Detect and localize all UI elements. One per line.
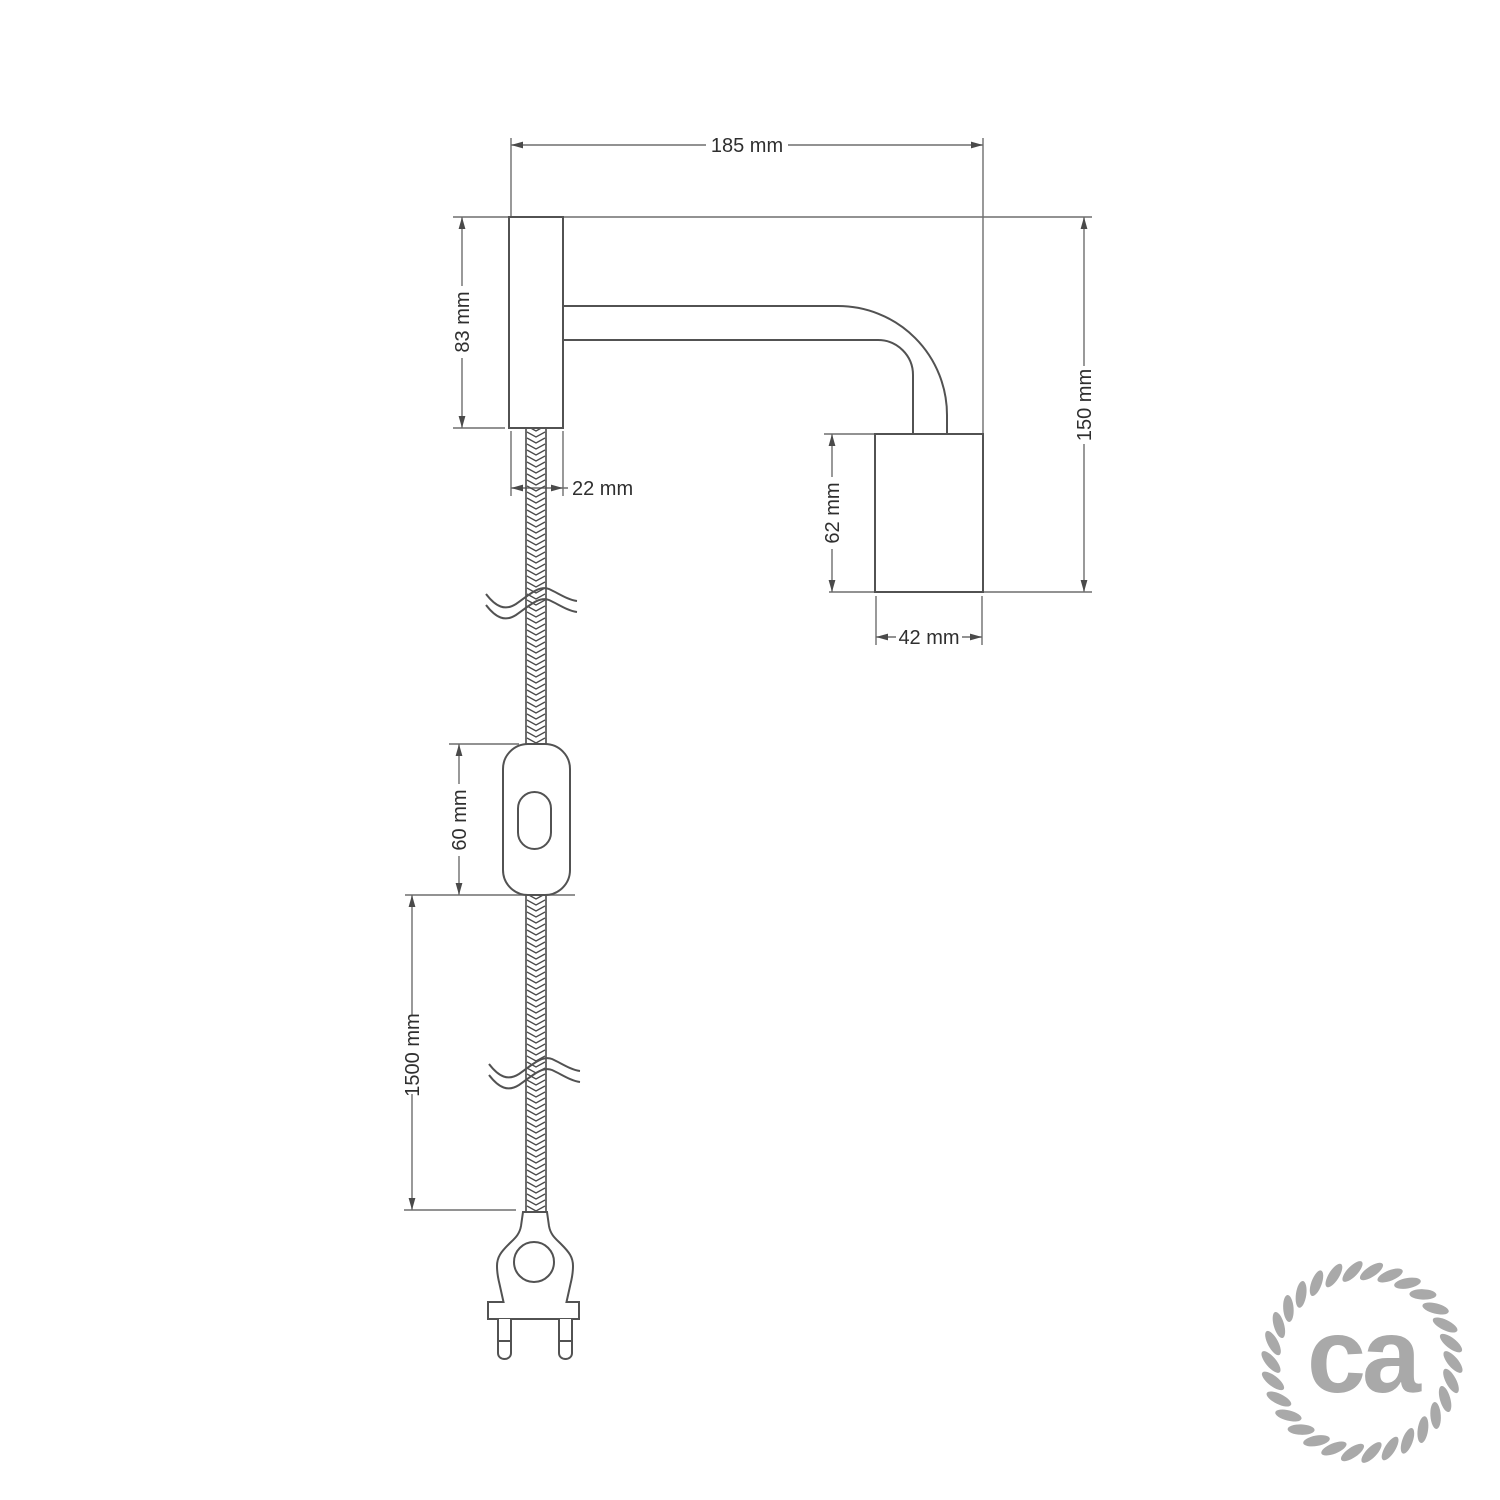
plug-screw-hole	[514, 1242, 554, 1282]
dimension-label-cable-exit-width: 22 mm	[572, 478, 633, 500]
plug-pin-right	[559, 1319, 572, 1359]
fabric-cable-lower	[526, 895, 546, 1212]
fabric-cable-upper	[526, 428, 546, 744]
dimension-socket-width: 42 mm	[876, 596, 982, 649]
dimension-label-plate-height: 83 mm	[452, 291, 474, 352]
dimension-label-socket-width: 42 mm	[898, 627, 959, 649]
lamp-arm-tube	[563, 306, 947, 434]
dimension-label-cord-length: 1500 mm	[402, 1013, 424, 1096]
plug-pin-left	[498, 1319, 511, 1359]
dimension-plate-height: 83 mm	[452, 217, 509, 428]
lamp-socket	[875, 434, 983, 592]
logo-text: ca	[1307, 1297, 1422, 1415]
technical-drawing-canvas: 185 mm 83 mm 22 mm 150 mm 62 mm	[0, 0, 1500, 1500]
dimension-label-arm-width: 185 mm	[711, 135, 783, 157]
brand-logo: ca	[1258, 1258, 1465, 1466]
dimension-label-socket-height: 62 mm	[822, 482, 844, 543]
dimension-cord-length: 1500 mm	[402, 895, 516, 1210]
euro-plug	[488, 1212, 579, 1359]
inline-switch	[503, 744, 570, 895]
lamp-dimension-diagram: 185 mm 83 mm 22 mm 150 mm 62 mm	[0, 0, 1500, 1500]
dimension-label-overall-height: 150 mm	[1074, 369, 1096, 441]
dimension-label-switch-length: 60 mm	[449, 789, 471, 850]
wall-mount-plate	[509, 217, 563, 428]
